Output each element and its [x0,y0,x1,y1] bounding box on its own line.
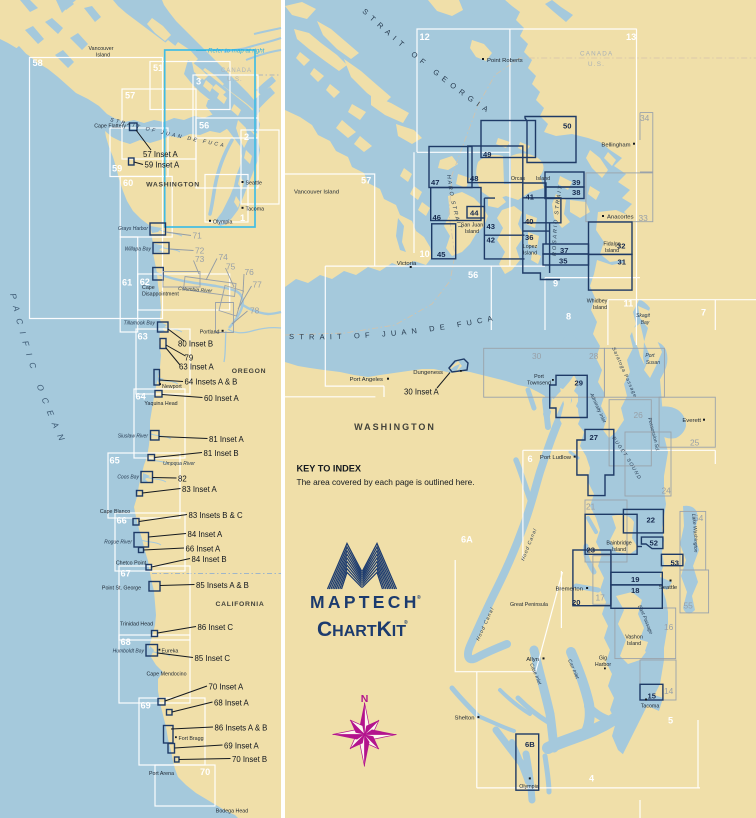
svg-text:63: 63 [138,332,148,342]
svg-text:Great Peninsula: Great Peninsula [510,602,548,608]
svg-text:Vancouver: Vancouver [89,46,114,52]
svg-text:56: 56 [468,270,478,280]
svg-text:63 Inset A: 63 Inset A [179,363,214,372]
svg-text:3: 3 [196,77,201,87]
svg-text:78: 78 [250,306,260,316]
svg-text:U.S.: U.S. [588,61,605,68]
svg-text:52: 52 [650,539,658,548]
svg-text:Bainbridge: Bainbridge [606,541,631,547]
svg-text:84 Inset B: 84 Inset B [192,555,227,564]
svg-text:83 Inset A: 83 Inset A [182,485,217,494]
svg-text:58: 58 [33,58,43,68]
svg-text:Port: Port [645,353,655,359]
svg-text:The area covered by each page: The area covered by each page is outline… [297,477,475,487]
svg-text:35: 35 [559,257,568,266]
svg-text:26: 26 [634,410,644,420]
svg-text:64: 64 [136,392,147,402]
svg-text:20: 20 [572,598,580,607]
svg-text:51: 51 [153,63,163,73]
svg-text:70: 70 [200,767,210,777]
svg-text:39: 39 [572,178,580,187]
svg-text:43: 43 [487,222,495,231]
svg-text:13: 13 [626,32,636,42]
svg-text:Tillamook Bay: Tillamook Bay [124,321,156,327]
svg-text:Olympia: Olympia [213,219,232,225]
svg-text:Tacoma: Tacoma [246,206,265,212]
svg-text:42: 42 [487,236,495,245]
svg-text:77: 77 [253,280,263,290]
svg-text:40: 40 [525,217,533,226]
svg-text:Umpqua River: Umpqua River [163,461,195,467]
svg-text:60 Inset A: 60 Inset A [204,394,239,403]
svg-text:14: 14 [664,686,674,696]
svg-text:6: 6 [528,454,533,464]
svg-text:Point Roberts: Point Roberts [487,58,523,64]
svg-text:44: 44 [470,209,479,218]
svg-text:WASHINGTON: WASHINGTON [354,422,436,432]
svg-text:Vashon: Vashon [625,635,643,641]
svg-text:85 Inset C: 85 Inset C [195,654,231,663]
svg-text:Yaquina Head: Yaquina Head [144,401,177,407]
svg-text:Harbor: Harbor [595,662,611,668]
svg-text:10: 10 [420,249,430,259]
svg-text:Grays Harbor: Grays Harbor [118,226,148,232]
svg-text:24: 24 [662,486,672,496]
svg-text:Skagit: Skagit [636,313,651,319]
svg-text:75: 75 [226,262,236,272]
svg-text:49: 49 [483,150,491,159]
svg-text:81 Inset B: 81 Inset B [204,449,239,458]
svg-text:Island: Island [612,547,626,553]
svg-text:CANADA: CANADA [221,68,252,74]
svg-text:CALIFORNIA: CALIFORNIA [216,601,265,608]
svg-text:53: 53 [671,559,679,568]
svg-text:Humboldt Bay: Humboldt Bay [113,649,145,655]
svg-text:55: 55 [684,601,694,611]
svg-text:6B: 6B [525,740,535,749]
svg-text:Eureka: Eureka [162,648,179,654]
svg-text:12: 12 [420,32,430,42]
svg-text:19: 19 [631,575,639,584]
svg-text:Orcas: Orcas [511,176,525,182]
svg-text:Cape: Cape [142,285,155,291]
svg-text:Willapa Bay: Willapa Bay [125,247,152,253]
svg-text:Everett: Everett [682,418,701,424]
svg-text:Trinidad Head: Trinidad Head [120,622,153,628]
svg-text:9: 9 [553,279,558,289]
svg-text:79: 79 [185,354,194,363]
svg-text:22: 22 [647,516,655,525]
svg-text:57 Inset A: 57 Inset A [143,150,178,159]
svg-text:Refer to map at right: Refer to map at right [208,48,265,55]
svg-text:57: 57 [361,176,371,186]
svg-text:Dungeness: Dungeness [413,370,443,376]
svg-text:31: 31 [618,258,627,267]
svg-text:67: 67 [121,569,131,579]
svg-text:4: 4 [589,774,595,784]
svg-text:Lopez: Lopez [523,244,538,250]
svg-text:CANADA: CANADA [580,51,613,58]
svg-text:U.S.: U.S. [227,77,243,83]
svg-text:82: 82 [178,475,187,484]
svg-text:Island: Island [523,251,537,257]
svg-text:48: 48 [470,174,478,183]
svg-text:60: 60 [123,178,133,188]
svg-text:17: 17 [596,593,606,603]
svg-text:Susan: Susan [646,360,660,366]
svg-text:34: 34 [640,113,650,123]
svg-text:25: 25 [690,438,700,448]
svg-text:Whidbey: Whidbey [587,299,608,305]
svg-text:MAPTECH: MAPTECH [310,592,420,612]
svg-text:86 Insets A & B: 86 Insets A & B [215,724,268,733]
svg-text:Cape Mendocino: Cape Mendocino [146,671,186,677]
svg-text:Newport: Newport [162,384,182,390]
svg-text:Tacoma: Tacoma [641,704,660,710]
svg-text:Island: Island [593,305,607,311]
svg-text:18: 18 [631,586,639,595]
svg-text:Bodega Head: Bodega Head [216,809,248,815]
svg-text:68 Inset A: 68 Inset A [214,699,249,708]
svg-text:Fort Bragg: Fort Bragg [179,736,204,742]
svg-text:69: 69 [141,701,151,711]
svg-text:Bay: Bay [641,320,650,326]
svg-text:56: 56 [199,121,209,131]
svg-text:80 Inset B: 80 Inset B [178,340,213,349]
svg-text:5: 5 [668,716,673,726]
svg-text:2: 2 [244,132,249,142]
svg-text:57: 57 [125,91,135,101]
svg-text:KEY TO INDEX: KEY TO INDEX [297,464,362,474]
svg-text:Rogue River: Rogue River [104,540,132,546]
svg-text:Port Angeles: Port Angeles [350,377,383,383]
svg-text:8: 8 [566,312,571,322]
svg-text:70 Inset B: 70 Inset B [232,755,267,764]
svg-text:1: 1 [240,213,245,223]
svg-text:®: ® [404,619,408,626]
svg-text:11: 11 [624,299,634,309]
svg-text:Olympia: Olympia [519,784,538,790]
svg-text:®: ® [417,594,421,601]
svg-text:Seattle: Seattle [246,181,263,187]
svg-text:Island: Island [96,53,110,59]
svg-text:59: 59 [112,164,122,174]
svg-text:Bremerton: Bremerton [555,587,583,593]
svg-text:Fidalgo: Fidalgo [603,242,620,248]
svg-text:84 Inset A: 84 Inset A [188,530,223,539]
svg-text:Bellingham: Bellingham [601,143,630,149]
svg-text:38: 38 [572,188,580,197]
svg-text:70 Inset A: 70 Inset A [209,683,244,692]
svg-text:86 Inset C: 86 Inset C [198,623,234,632]
svg-text:Siuslaw River: Siuslaw River [118,434,149,440]
svg-text:Disappointment: Disappointment [142,292,179,298]
svg-text:OREGON: OREGON [232,368,266,375]
svg-text:Island: Island [465,229,479,235]
svg-text:30: 30 [532,351,542,361]
svg-text:81 Inset A: 81 Inset A [209,435,244,444]
svg-text:Chetco Point: Chetco Point [116,561,147,567]
svg-text:27: 27 [590,433,598,442]
svg-text:76: 76 [245,267,255,277]
svg-text:83 Insets B & C: 83 Insets B & C [189,511,244,520]
svg-text:Coos Bay: Coos Bay [117,475,139,481]
svg-text:Island: Island [605,248,619,254]
svg-text:69 Inset A: 69 Inset A [224,742,259,751]
svg-text:21: 21 [586,502,596,512]
svg-text:66 Inset A: 66 Inset A [186,545,221,554]
svg-text:47: 47 [431,178,439,187]
svg-text:Vancouver Island: Vancouver Island [294,190,339,196]
svg-text:41: 41 [526,193,535,202]
svg-text:71: 71 [193,231,203,241]
svg-text:Port Ludlow: Port Ludlow [540,455,572,461]
svg-text:Seattle: Seattle [659,585,678,591]
svg-text:65: 65 [110,456,120,466]
svg-text:7: 7 [701,308,706,318]
svg-text:23: 23 [587,546,595,555]
svg-text:64 Insets A & B: 64 Insets A & B [185,378,238,387]
svg-text:30 Inset A: 30 Inset A [404,388,439,397]
svg-text:Cape Blanco: Cape Blanco [100,509,130,515]
svg-text:6A: 6A [461,535,473,545]
svg-text:Point St. George: Point St. George [102,586,141,592]
svg-text:Cape Flattery: Cape Flattery [94,124,126,130]
svg-text:59 Inset A: 59 Inset A [145,161,180,170]
svg-text:50: 50 [563,122,571,131]
svg-text:Port: Port [534,374,544,380]
svg-text:Anacortes: Anacortes [607,215,634,221]
svg-text:Port Arena: Port Arena [149,771,174,777]
svg-text:85 Insets A & B: 85 Insets A & B [196,581,249,590]
svg-text:Shelton: Shelton [455,716,475,722]
svg-text:37: 37 [560,246,568,255]
svg-text:33: 33 [639,213,649,223]
svg-text:61: 61 [122,278,132,288]
svg-text:Townsend: Townsend [527,381,551,387]
svg-text:Victoria: Victoria [397,261,417,267]
svg-text:68: 68 [121,637,131,647]
svg-text:WASHINGTON: WASHINGTON [146,182,200,189]
svg-text:73: 73 [195,254,205,264]
svg-text:28: 28 [589,351,599,361]
svg-text:46: 46 [433,213,441,222]
svg-text:36: 36 [525,233,533,242]
svg-text:29: 29 [575,379,583,388]
svg-text:66: 66 [117,516,127,526]
svg-text:San Juan: San Juan [461,223,483,229]
svg-text:15: 15 [648,692,657,701]
svg-text:Island: Island [536,176,550,182]
svg-text:Allyn: Allyn [526,657,539,663]
svg-text:16: 16 [664,622,674,632]
svg-text:Island: Island [627,641,641,647]
svg-text:Gig: Gig [599,656,607,662]
svg-text:45: 45 [437,250,446,259]
svg-text:74: 74 [219,252,229,262]
svg-text:Portland: Portland [200,329,220,335]
